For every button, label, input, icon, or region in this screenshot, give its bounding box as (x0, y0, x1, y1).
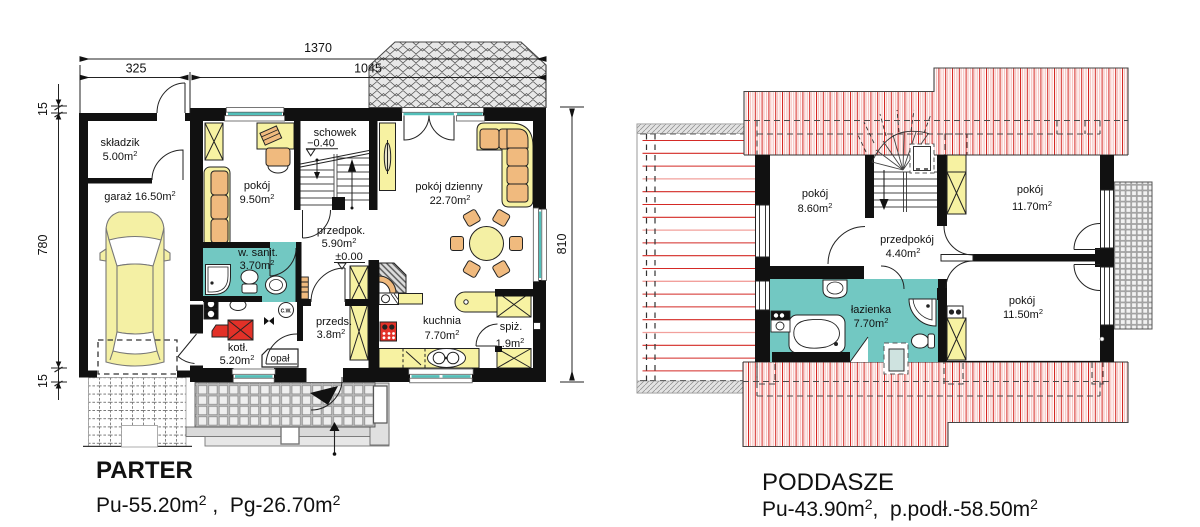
svg-text:Pu-43.90m2, p.podł.-58.50m2: Pu-43.90m2, p.podł.-58.50m2 (762, 496, 1038, 521)
svg-text:przedpokój: przedpokój (880, 234, 934, 246)
svg-text:PARTER: PARTER (96, 457, 193, 484)
svg-text:przedpok.: przedpok. (317, 225, 365, 237)
svg-text:pokój: pokój (244, 180, 270, 192)
svg-text:1370: 1370 (304, 41, 332, 55)
svg-text:15: 15 (36, 374, 50, 388)
svg-text:5.90m2: 5.90m2 (322, 236, 357, 250)
svg-text:opał: opał (271, 354, 291, 365)
svg-text:1.9m2: 1.9m2 (496, 336, 525, 350)
svg-text:kuchnia: kuchnia (423, 315, 462, 327)
svg-text:pokój: pokój (802, 188, 828, 200)
svg-text:8.60m2: 8.60m2 (798, 201, 833, 215)
svg-text:7.70m2: 7.70m2 (854, 316, 889, 330)
svg-text:±0.00: ±0.00 (335, 251, 362, 263)
svg-text:5.00m2: 5.00m2 (103, 149, 138, 163)
svg-text:−0.40: −0.40 (307, 138, 335, 150)
svg-text:przeds.: przeds. (316, 316, 352, 328)
svg-text:3.70m2: 3.70m2 (240, 258, 275, 272)
svg-text:składzik: składzik (100, 137, 140, 149)
svg-text:spiż.: spiż. (500, 321, 523, 333)
svg-text:PODDASZE: PODDASZE (762, 469, 894, 496)
svg-text:810: 810 (555, 234, 569, 255)
svg-text:pokój: pokój (1017, 184, 1043, 196)
svg-text:7.70m2: 7.70m2 (425, 328, 460, 342)
svg-text:780: 780 (36, 235, 50, 256)
svg-text:C.W.: C.W. (281, 309, 292, 315)
svg-text:garaż 16.50m2: garaż 16.50m2 (104, 189, 175, 203)
svg-text:11.70m2: 11.70m2 (1012, 199, 1052, 213)
svg-text:9.50m2: 9.50m2 (240, 192, 275, 206)
svg-text:11.50m2: 11.50m2 (1003, 307, 1043, 321)
svg-text:Pu-55.20m2 , Pg-26.70m2: Pu-55.20m2 , Pg-26.70m2 (96, 492, 341, 517)
svg-text:1045: 1045 (354, 62, 382, 76)
svg-text:5.20m2: 5.20m2 (220, 353, 255, 367)
svg-text:łazienka: łazienka (851, 304, 892, 316)
svg-text:pokój: pokój (1009, 295, 1035, 307)
svg-text:4.40m2: 4.40m2 (886, 246, 921, 260)
svg-text:kotł.: kotł. (228, 342, 248, 354)
svg-text:15: 15 (36, 102, 50, 116)
svg-text:3.8m2: 3.8m2 (317, 327, 346, 341)
svg-text:325: 325 (126, 62, 147, 76)
svg-text:22.70m2: 22.70m2 (430, 193, 471, 207)
svg-text:pokój dzienny: pokój dzienny (415, 181, 483, 193)
